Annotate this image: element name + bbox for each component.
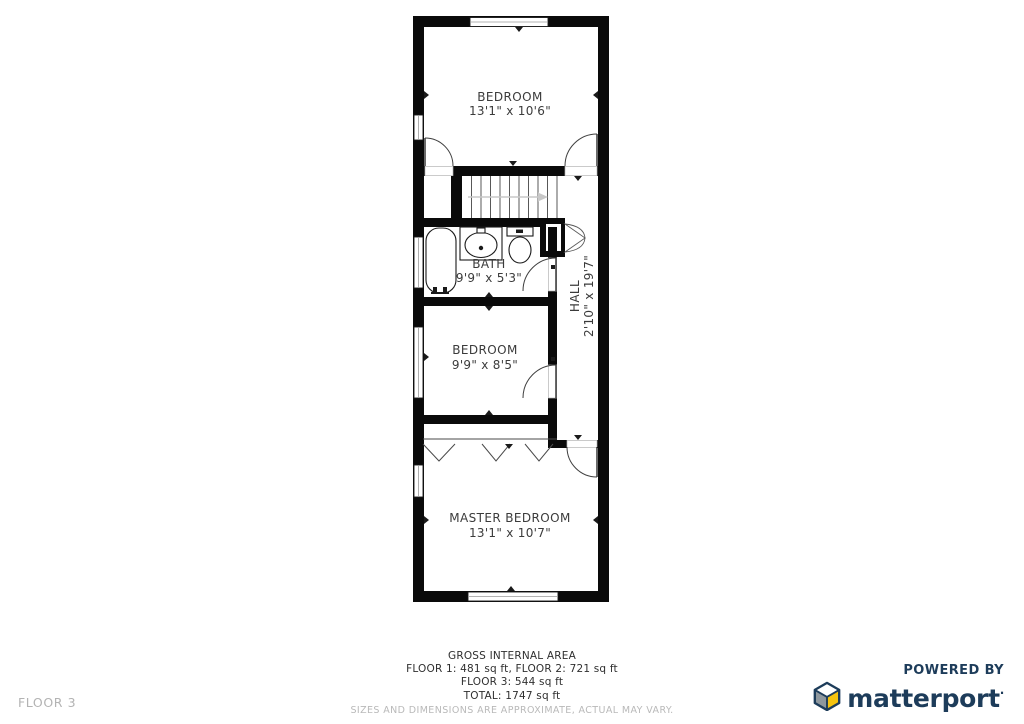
floor-plan: BEDROOM 13'1" x 10'6" BATH 9'9" x 5'3" H… [0,0,1024,724]
bathtub [426,228,456,294]
wardrobe-chevron-2 [482,444,510,461]
room-dims-bath: 9'9" x 5'3" [456,271,522,285]
floorplan-page: BEDROOM 13'1" x 10'6" BATH 9'9" x 5'3" H… [0,0,1024,724]
wall-w1-left [413,166,425,176]
wall-w4 [413,415,557,424]
room-label-master: MASTER BEDROOM [449,511,570,525]
door-hall-closet-bifold [565,224,585,252]
door-bedroom-top-left [425,138,453,166]
door-master [567,447,597,477]
room-dims-master: 13'1" x 10'7" [469,526,551,540]
room-label-bedroom-mid: BEDROOM [452,343,517,357]
wall-w1-right [597,166,609,176]
wardrobe-chevron-1 [423,444,455,461]
staircase [462,176,557,218]
room-label-bedroom-top: BEDROOM [477,90,542,104]
trademark-dot: · [1000,686,1004,700]
room-dims-bedroom-mid: 9'9" x 8'5" [452,358,518,372]
wall-outer-left [413,16,424,602]
matterport-cube-icon [812,681,842,711]
room-dims-hall: 2'10" x 19'7" [582,255,596,337]
wall-hall-left-a [548,227,557,258]
door-bedroom-top-right [565,134,597,166]
powered-by-text: POWERED BY [812,663,1004,678]
room-dims-bedroom-top: 13'1" x 10'6" [469,104,551,118]
sink [460,227,502,260]
wall-hall-bottom-right [597,440,609,448]
room-label-bath: BATH [472,257,505,271]
matterport-wordmark: matterport· [847,679,1004,713]
wall-w3 [413,297,557,306]
floor-label: FLOOR 3 [18,695,76,710]
toilet [507,227,533,263]
room-labels: BEDROOM 13'1" x 10'6" BATH 9'9" x 5'3" H… [449,90,596,540]
wall-w1-mid [453,166,565,176]
matterport-branding: POWERED BY matterport· [812,663,1004,713]
area-title: GROSS INTERNAL AREA [0,650,1024,663]
room-label-hall: HALL [568,280,582,312]
wall-outer-right [598,16,609,602]
wardrobe [423,439,557,461]
